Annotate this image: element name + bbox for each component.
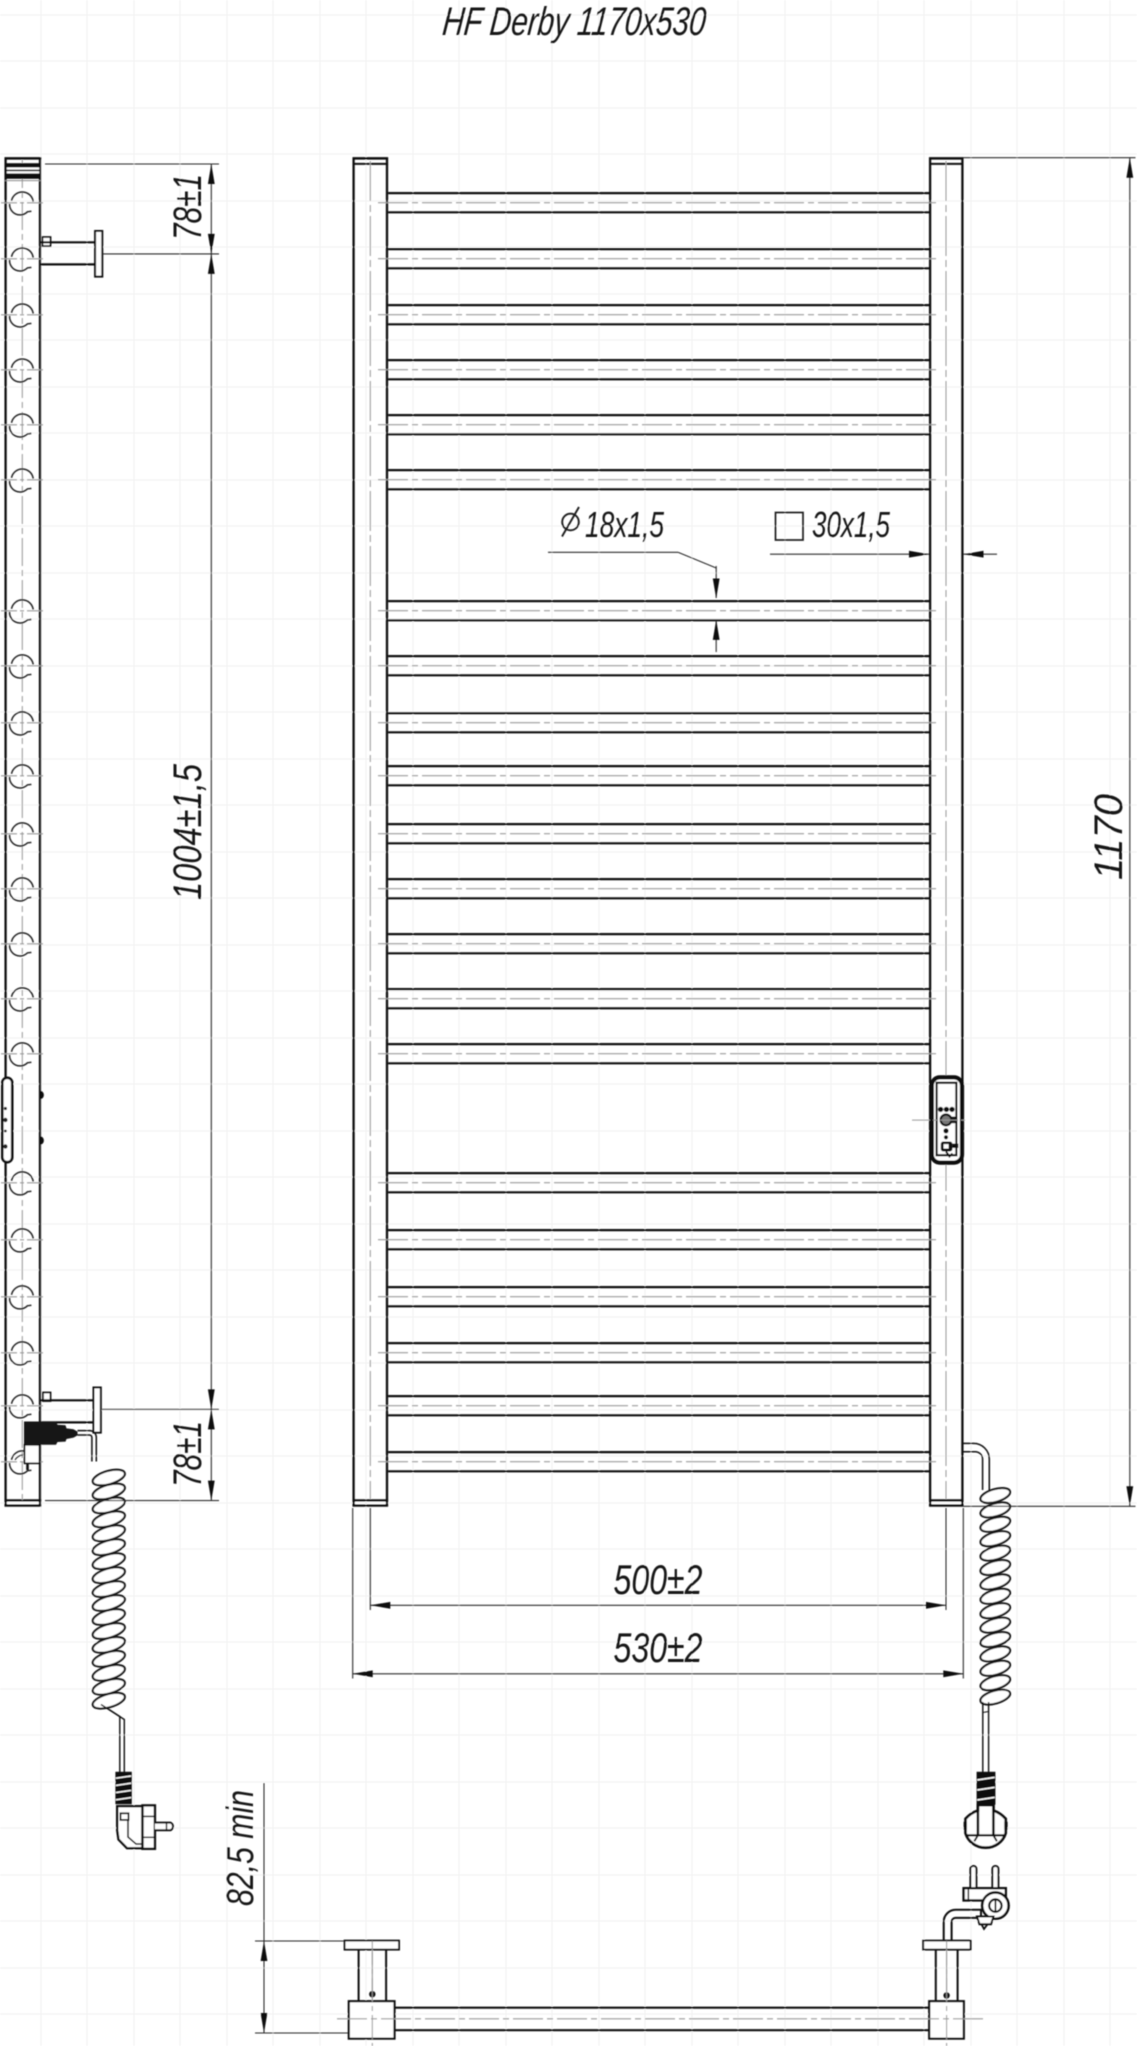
svg-text:82,5 min: 82,5 min — [220, 1790, 262, 1906]
svg-text:1170: 1170 — [1087, 794, 1131, 880]
svg-text:78±1: 78±1 — [166, 174, 210, 240]
svg-text:500±2: 500±2 — [614, 1556, 703, 1603]
svg-text:18x1,5: 18x1,5 — [585, 504, 665, 545]
svg-text:530±2: 530±2 — [614, 1624, 703, 1671]
svg-text:78±1: 78±1 — [166, 1421, 210, 1487]
svg-text:1004±1,5: 1004±1,5 — [166, 763, 210, 900]
svg-text:HF Derby 1170x530: HF Derby 1170x530 — [441, 0, 709, 44]
svg-text:30x1,5: 30x1,5 — [812, 504, 891, 545]
